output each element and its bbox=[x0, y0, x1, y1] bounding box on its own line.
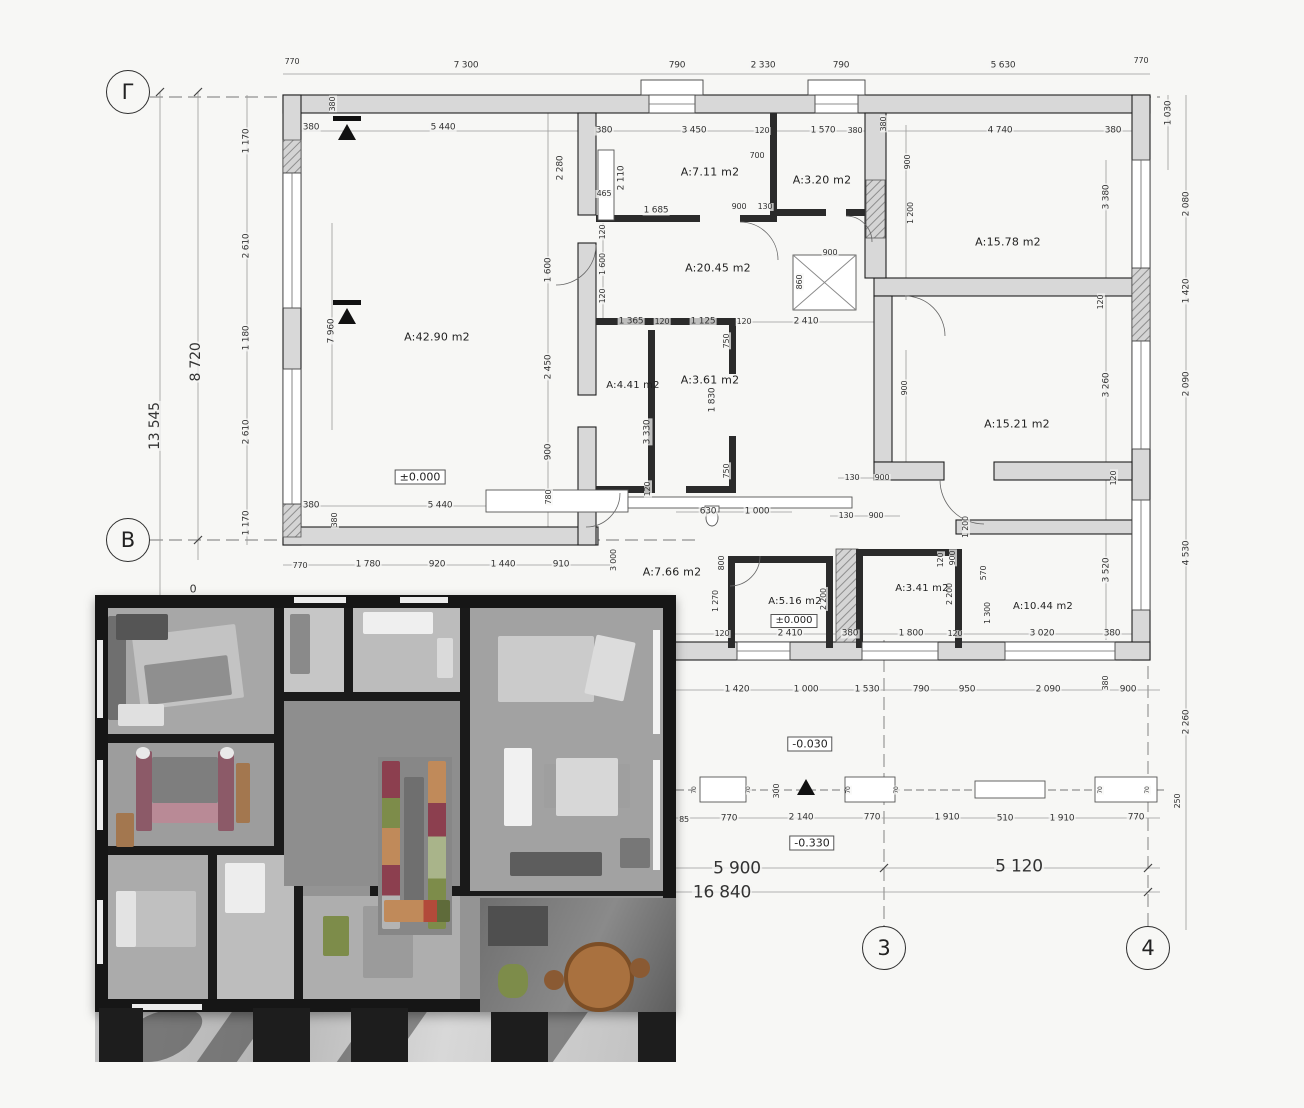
interior-walls bbox=[596, 113, 962, 648]
closet-aisle bbox=[404, 777, 424, 907]
step bbox=[351, 1008, 408, 1062]
render-window bbox=[653, 760, 660, 870]
lounge-sofa bbox=[498, 636, 594, 702]
rug-tan bbox=[116, 813, 134, 847]
desk bbox=[116, 614, 168, 640]
render-wall bbox=[344, 608, 353, 698]
door-arcs bbox=[556, 216, 984, 586]
render-wall bbox=[460, 608, 470, 891]
step bbox=[638, 1010, 676, 1062]
bench bbox=[118, 704, 164, 726]
floor-plan-canvas: 7707 3007902 3307905 6307703805 44038038… bbox=[0, 0, 1304, 1108]
bedpost bbox=[136, 747, 150, 759]
plant bbox=[323, 916, 349, 956]
bedpost bbox=[220, 747, 234, 759]
round-table bbox=[564, 942, 634, 1012]
render-wall bbox=[274, 608, 284, 851]
hatched-wall-segments bbox=[283, 140, 1150, 642]
window-midlines bbox=[292, 104, 1141, 651]
basin bbox=[437, 638, 453, 678]
chairs bbox=[618, 764, 630, 808]
entry-arrow bbox=[797, 779, 815, 795]
dresser bbox=[384, 900, 450, 922]
render-wall bbox=[108, 734, 280, 743]
render-bedroom-1 bbox=[108, 608, 274, 734]
render-terrace bbox=[480, 898, 676, 1012]
shower bbox=[290, 614, 310, 674]
render-closet-room bbox=[217, 855, 294, 999]
rug-tan bbox=[236, 763, 250, 823]
render-wall bbox=[208, 851, 217, 999]
bed-center bbox=[152, 757, 218, 803]
windows bbox=[283, 80, 1150, 660]
render-window bbox=[400, 597, 448, 603]
render-bathroom-1 bbox=[284, 608, 344, 692]
washer-units bbox=[363, 612, 433, 634]
render-living-kitchen bbox=[470, 608, 663, 891]
tv-bench bbox=[510, 852, 602, 876]
bedpost-rail bbox=[136, 751, 152, 831]
stool bbox=[630, 958, 650, 978]
render-window bbox=[294, 597, 346, 603]
plant bbox=[498, 964, 528, 998]
render-window bbox=[97, 760, 103, 830]
step bbox=[491, 1008, 548, 1062]
render-bedroom-2 bbox=[108, 743, 274, 846]
render-bedroom-3 bbox=[108, 855, 208, 999]
dining-table bbox=[556, 758, 618, 816]
chairs bbox=[544, 764, 556, 808]
render-bathroom-2 bbox=[353, 608, 460, 692]
step bbox=[99, 1008, 143, 1062]
pillows bbox=[116, 891, 136, 947]
exterior-walls bbox=[283, 95, 1150, 660]
shelf bbox=[225, 863, 265, 913]
step bbox=[253, 1008, 310, 1062]
terrace-shadow bbox=[488, 906, 548, 946]
render-window bbox=[653, 630, 660, 734]
render-window bbox=[97, 900, 103, 964]
render-window bbox=[97, 640, 103, 718]
kitchen-island bbox=[504, 748, 532, 826]
render-wall bbox=[280, 692, 466, 701]
side-table bbox=[620, 838, 650, 868]
stool bbox=[544, 970, 564, 990]
bed-pink bbox=[152, 803, 218, 823]
bedpost-rail bbox=[218, 751, 234, 831]
